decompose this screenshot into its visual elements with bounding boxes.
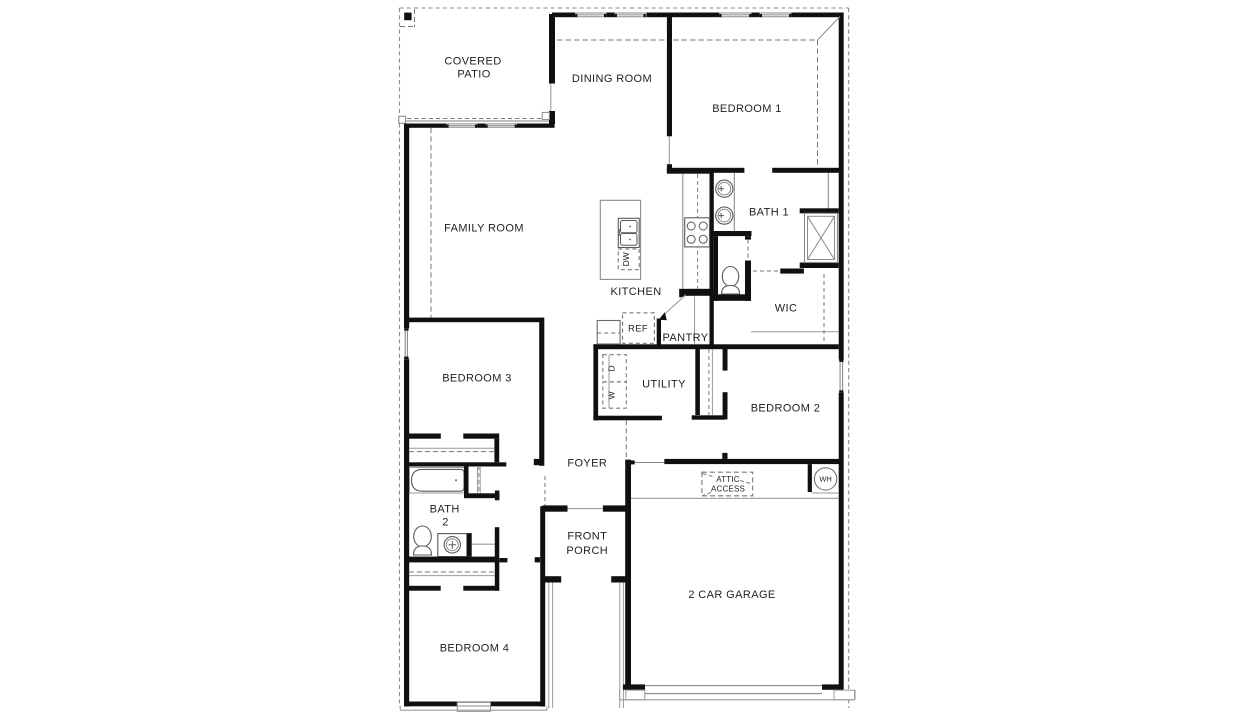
svg-text:BEDROOM 4: BEDROOM 4 (440, 642, 510, 654)
svg-text:REF: REF (628, 323, 648, 334)
svg-text:ATTIC: ATTIC (716, 475, 740, 484)
svg-text:KITCHEN: KITCHEN (610, 286, 661, 298)
svg-text:ACCESS: ACCESS (711, 485, 745, 494)
svg-text:DINING ROOM: DINING ROOM (572, 73, 652, 85)
svg-text:WH: WH (819, 475, 832, 484)
svg-text:PATIO: PATIO (457, 69, 490, 81)
svg-text:BATH: BATH (430, 504, 460, 516)
svg-text:W: W (607, 391, 617, 399)
svg-text:FOYER: FOYER (567, 458, 607, 470)
svg-text:PANTRY: PANTRY (662, 332, 708, 344)
svg-text:BATH 1: BATH 1 (749, 207, 789, 219)
svg-text:BEDROOM 2: BEDROOM 2 (751, 403, 821, 415)
svg-text:BEDROOM 3: BEDROOM 3 (442, 372, 512, 384)
svg-text:D: D (607, 365, 617, 371)
svg-text:COVERED: COVERED (444, 56, 501, 68)
svg-text:FRONT: FRONT (567, 531, 607, 543)
svg-text:BEDROOM 1: BEDROOM 1 (712, 103, 782, 115)
svg-text:UTILITY: UTILITY (642, 378, 686, 390)
svg-text:FAMILY ROOM: FAMILY ROOM (444, 223, 524, 235)
svg-text:DW: DW (621, 252, 631, 266)
svg-text:WIC: WIC (775, 303, 798, 315)
svg-text:PORCH: PORCH (566, 545, 608, 557)
svg-text:2 CAR GARAGE: 2 CAR GARAGE (688, 589, 775, 601)
svg-text:2: 2 (442, 517, 449, 529)
